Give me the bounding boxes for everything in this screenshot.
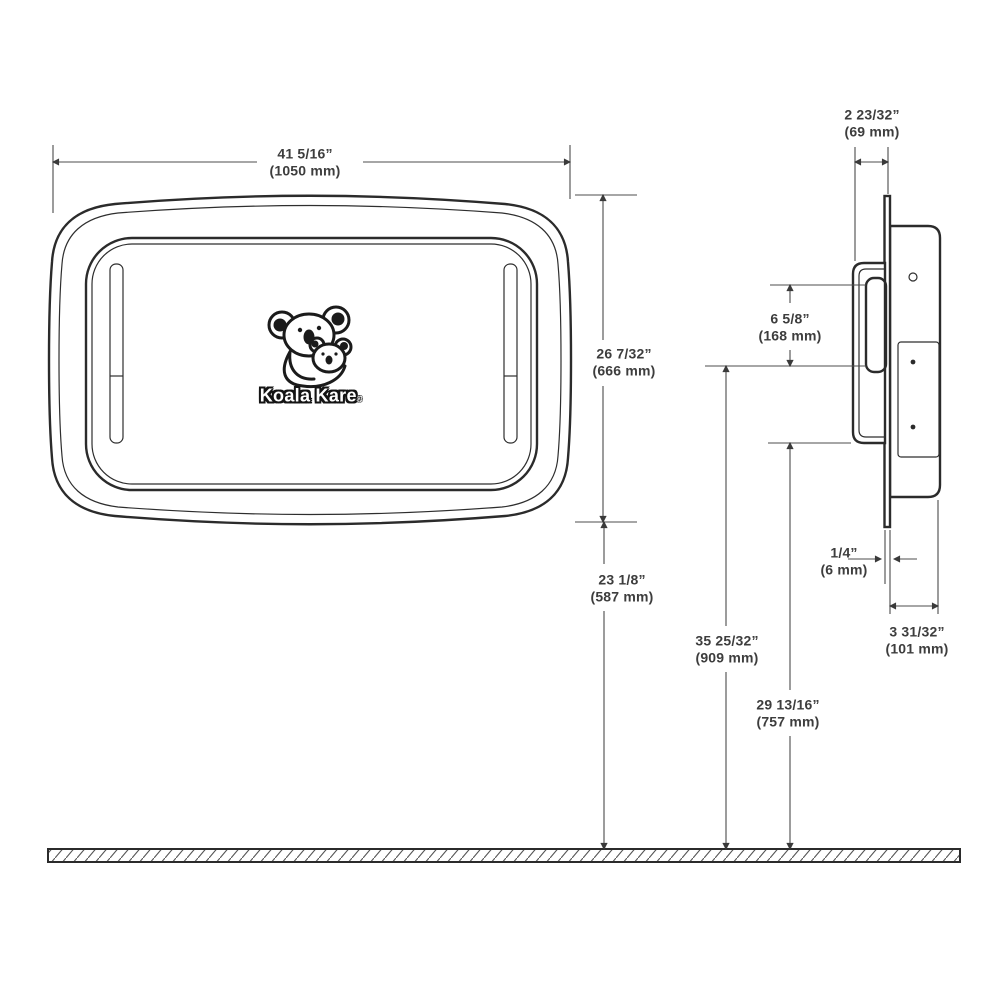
dim-recess-depth-lines	[890, 500, 938, 614]
dim-floor-to-handle-bottom-label: 29 13/16” (757 mm)	[756, 696, 819, 729]
dim-overall-width-mm: (1050 mm)	[269, 162, 340, 179]
dim-handle-height-inches: 6 5/8”	[758, 310, 821, 327]
dim-floor-to-handle-top-label: 35 25/32” (909 mm)	[695, 632, 758, 665]
dim-floor-to-handle-bottom-inches: 29 13/16”	[756, 696, 819, 713]
dim-floor-to-bottom-inches: 23 1/8”	[590, 571, 653, 588]
dim-floor-to-handle-top-mm: (909 mm)	[695, 649, 758, 666]
koala-kare-wordmark: Koala Kare®	[260, 386, 363, 407]
dim-overall-height-label: 26 7/32” (666 mm)	[592, 345, 655, 378]
dim-recess-depth-inches: 3 31/32”	[885, 623, 948, 640]
dim-overall-height-inches: 26 7/32”	[592, 345, 655, 362]
mounting-dot-2	[911, 425, 916, 430]
mounting-dot-1	[911, 360, 916, 365]
dim-floor-to-handle-bottom-lines	[768, 443, 851, 849]
dimension-drawing-page: 41 5/16” (1050 mm) 2 23/32” (69 mm) 26 7…	[0, 0, 1000, 1000]
dim-floor-to-handle-bottom-mm: (757 mm)	[756, 713, 819, 730]
dim-overall-width-label: 41 5/16” (1050 mm)	[269, 145, 340, 178]
dim-projection-mm: (69 mm)	[844, 123, 899, 140]
side-view	[853, 196, 940, 527]
technical-drawing	[0, 0, 1000, 1000]
dim-projection-inches: 2 23/32”	[844, 106, 899, 123]
koala-kare-brand-text: Koala Kare	[260, 386, 357, 406]
dim-wall-thickness-mm: (6 mm)	[820, 561, 867, 578]
dim-recess-depth-mm: (101 mm)	[885, 640, 948, 657]
dim-overall-height-mm: (666 mm)	[592, 362, 655, 379]
dim-floor-to-bottom-label: 23 1/8” (587 mm)	[590, 571, 653, 604]
dim-handle-height-mm: (168 mm)	[758, 327, 821, 344]
dim-projection-lines	[855, 147, 888, 261]
handle-profile	[853, 263, 886, 443]
dim-wall-thickness-inches: 1/4”	[820, 544, 867, 561]
front-view	[49, 196, 571, 525]
floor-section	[48, 849, 960, 862]
dim-overall-width-inches: 41 5/16”	[269, 145, 340, 162]
dim-handle-height-label: 6 5/8” (168 mm)	[758, 310, 821, 343]
dim-projection-label: 2 23/32” (69 mm)	[844, 106, 899, 139]
registered-trademark-mark: ®	[357, 397, 362, 404]
dim-recess-depth-label: 3 31/32” (101 mm)	[885, 623, 948, 656]
dim-floor-to-bottom-mm: (587 mm)	[590, 588, 653, 605]
dim-wall-thickness-label: 1/4” (6 mm)	[820, 544, 867, 577]
dim-floor-to-handle-top-inches: 35 25/32”	[695, 632, 758, 649]
